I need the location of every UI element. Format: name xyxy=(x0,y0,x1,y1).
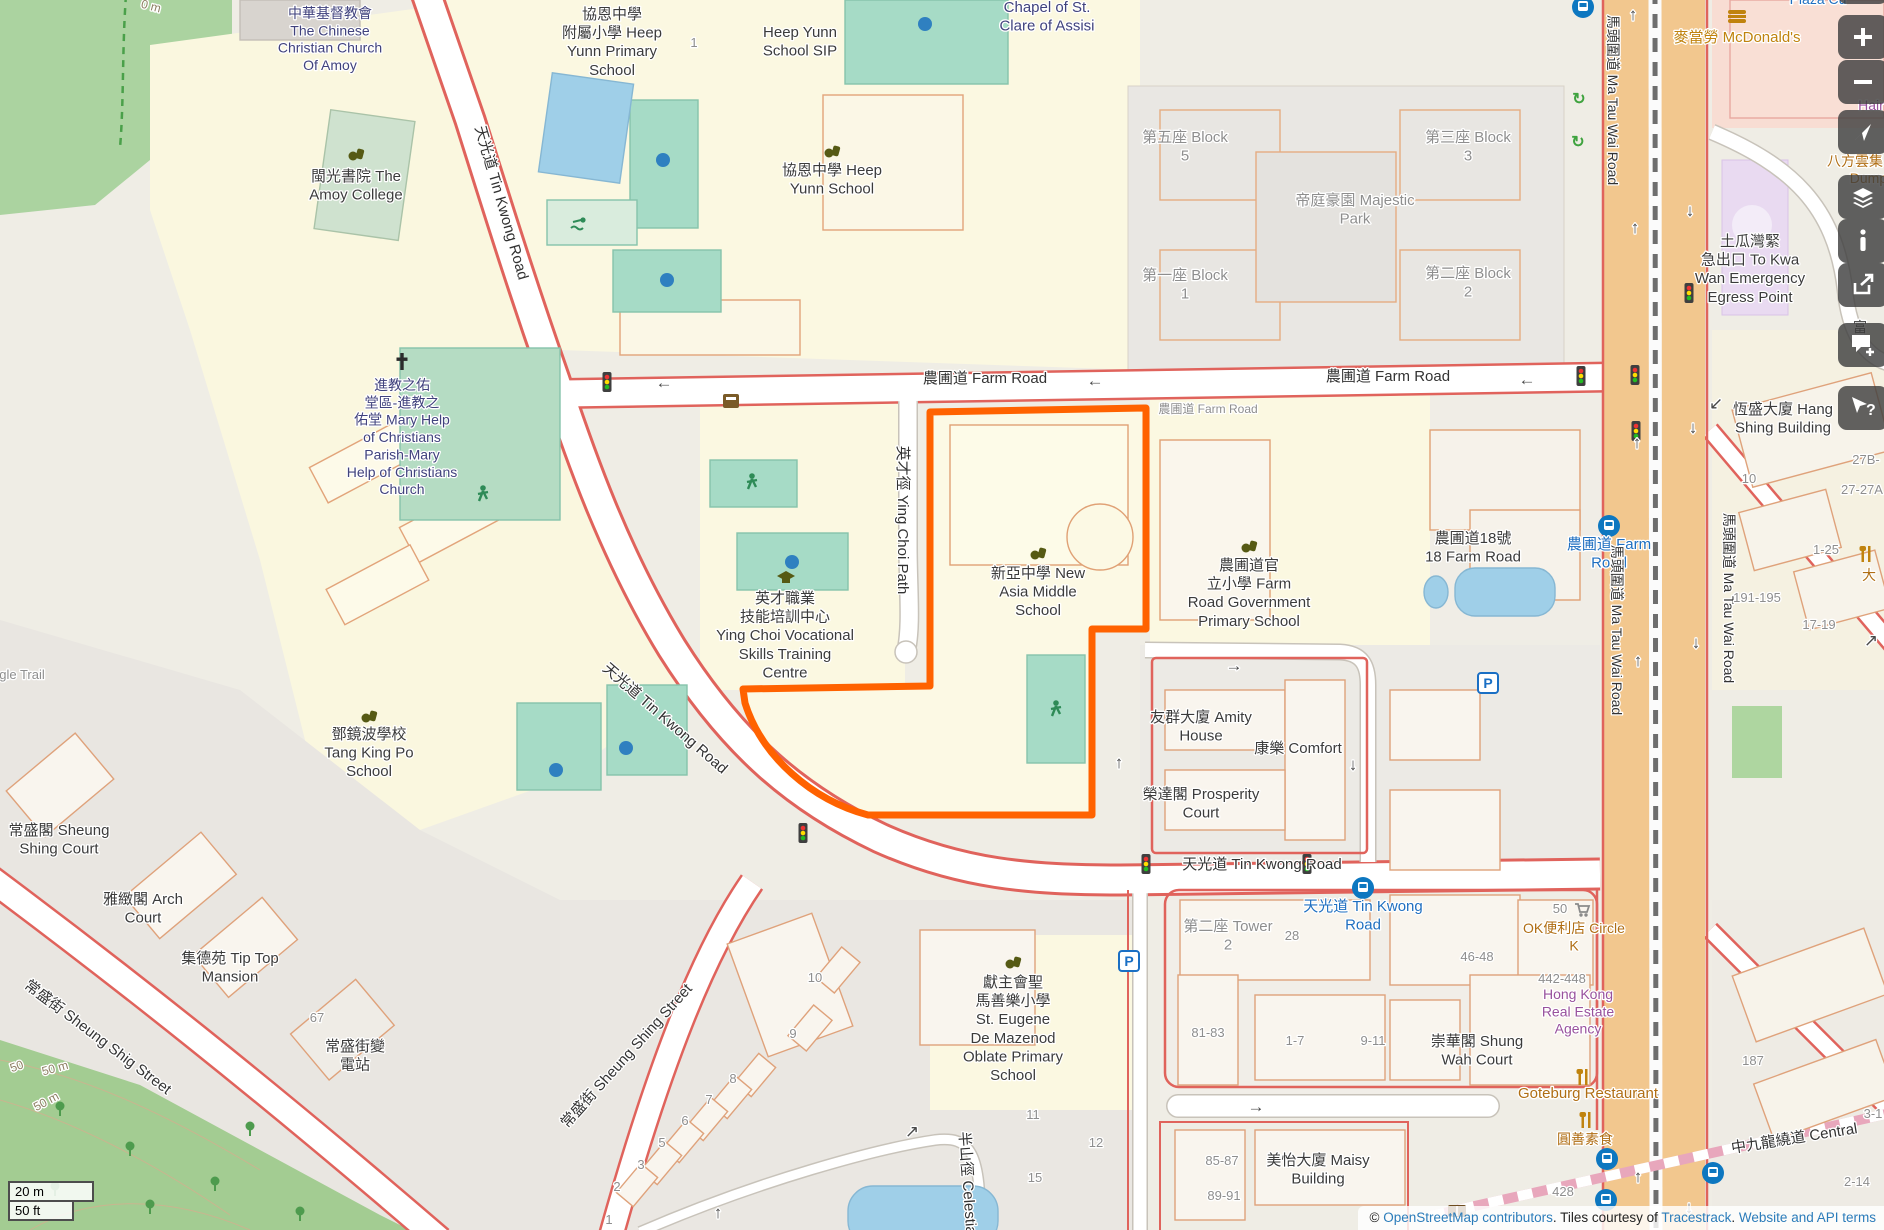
map-label-house-1-7: 1-7 xyxy=(1286,1033,1305,1048)
map-label-oneway-left-1: ← xyxy=(656,373,673,392)
traffic-icon xyxy=(799,823,808,843)
map-label-terrace-5: 5 xyxy=(658,1135,665,1150)
map-label-house-2-14: 2-14 xyxy=(1844,1174,1870,1189)
map-label-terrace-3: 3 xyxy=(637,1157,644,1172)
envelope-icon xyxy=(723,394,739,408)
map-label-house-27b: 27B- xyxy=(1852,452,1879,467)
map-label-terrace-1: 1 xyxy=(605,1212,612,1227)
svg-text:P: P xyxy=(1124,953,1133,969)
map-label-house-85-87: 85-87 xyxy=(1205,1153,1238,1168)
show-location-button[interactable] xyxy=(1838,110,1884,154)
parking-icon: P xyxy=(1119,951,1139,971)
map-label-terrace-6: 6 xyxy=(681,1113,688,1128)
map-label-da-fragment: 大 xyxy=(1862,567,1876,583)
map-label-oneway-left-3: ← xyxy=(1519,370,1536,389)
map-label-mcdonalds: 麥當勞 McDonald's xyxy=(1673,29,1800,46)
map-label-oneway-up-6: ↑ xyxy=(714,1203,723,1222)
map-label-farm-road-small: 農圃道 Farm Road xyxy=(1158,402,1257,416)
map-label-oneway-up-4: ↑ xyxy=(1634,651,1643,670)
map-label-oneway-right-2: → xyxy=(1248,1097,1265,1116)
map-label-terrace-2: 2 xyxy=(613,1179,620,1194)
map-label-18-farm-road: 農圃道18號18 Farm Road xyxy=(1425,530,1521,566)
map-label-house-191-195: 191-195 xyxy=(1733,590,1781,605)
tracestrack-link[interactable]: Tracestrack xyxy=(1661,1210,1731,1225)
map-label-house-50: 50 xyxy=(1553,901,1567,916)
zoom-in-button[interactable] xyxy=(1838,15,1884,59)
map-label-house-15c: 15 xyxy=(1028,1170,1042,1185)
svg-text:↻: ↻ xyxy=(1571,134,1584,151)
map-label-house-10r: 10 xyxy=(1742,471,1756,486)
map-label-farm-road-2: 農圃道 Farm Road xyxy=(1326,368,1450,385)
map-label-house-28: 28 xyxy=(1285,928,1299,943)
map-label-house-3-1: 3-1 xyxy=(1864,1106,1883,1121)
map-label-oneway-down-2: ↓ xyxy=(1689,418,1698,437)
svg-text:?: ? xyxy=(1866,402,1876,419)
osm-contributors-link[interactable]: OpenStreetMap contributors xyxy=(1383,1210,1553,1225)
bus-icon xyxy=(1598,515,1620,537)
map-label-oneway-right-1: → xyxy=(1226,656,1243,675)
map-label-heep-yunn-sip: Heep YunnSchool SIP xyxy=(763,24,837,60)
traffic-icon xyxy=(1631,365,1640,385)
map-label-oneway-up-1: ↑ xyxy=(1629,5,1638,24)
dot-icon xyxy=(549,763,563,777)
dot-icon xyxy=(619,741,633,755)
map-label-house-81-83: 81-83 xyxy=(1191,1025,1224,1040)
map-label-house-46-48: 46-48 xyxy=(1460,949,1493,964)
map-label-oneway-up-3: ↑ xyxy=(1633,433,1642,452)
map-label-oneway-left-2: ← xyxy=(1087,371,1104,390)
map-label-chapel-st-clare: Chapel of St.Clare of Assisi xyxy=(999,0,1094,35)
map-label-ma-tau-wai-1: 馬頭圍道 Ma Tau Wai Road xyxy=(1605,15,1621,185)
recycle-icon: ↻ xyxy=(1572,91,1585,108)
map-label-house-1-25: 1-25 xyxy=(1813,542,1839,557)
map-label-dumpling-fragment: 八方雲集 xyxy=(1827,153,1883,169)
share-button[interactable] xyxy=(1838,263,1884,307)
map-label-tin-kwong-h: 天光道 Tin Kwong Road xyxy=(1182,856,1342,873)
map-label-terrace-9: 9 xyxy=(789,1026,796,1041)
map-label-house-12c: 12 xyxy=(1089,1135,1103,1150)
attribution-mid1: . Tiles courtesy of xyxy=(1553,1210,1662,1225)
map-label-goteburg-restaurant: Goteburg Restaurant xyxy=(1518,1085,1659,1102)
map-label-oneway-up-2: ↑ xyxy=(1631,218,1640,237)
map-label-oneway-up-5: ↑ xyxy=(1634,1167,1643,1186)
map-label-house-9-11: 9-11 xyxy=(1360,1033,1385,1048)
map-label-veg-restaurant: 圓善素食 xyxy=(1557,1131,1613,1147)
map-label-oneway-down-3: ↓ xyxy=(1692,633,1701,652)
map-label-house-1: 1 xyxy=(690,35,697,50)
map-label-trail-fragment: gle Trail xyxy=(0,667,45,682)
terms-link[interactable]: Website and API terms xyxy=(1739,1210,1876,1225)
traffic-icon xyxy=(1685,283,1694,303)
map-label-shung-wah-court: 崇華閣 ShungWah Court xyxy=(1431,1033,1524,1069)
traffic-icon xyxy=(603,372,612,392)
map-label-house-67: 67 xyxy=(310,1010,324,1025)
map-label-plaza-fragment: Plaza Cu xyxy=(1790,0,1847,7)
attribution-copyright: © xyxy=(1370,1210,1384,1225)
map-label-house-442-448: 442-448 xyxy=(1538,971,1586,986)
map-label-oneway-ne-1: ↗ xyxy=(905,1122,919,1141)
burger-icon xyxy=(1728,10,1746,23)
map-label-house-428: 428 xyxy=(1552,1184,1574,1199)
attribution-bar: © OpenStreetMap contributors. Tiles cour… xyxy=(1358,1206,1884,1230)
scale-metric: 20 m xyxy=(8,1181,94,1202)
traffic-icon xyxy=(1577,366,1586,386)
partial-top-button[interactable] xyxy=(1838,0,1884,4)
map-label-terrace-10: 10 xyxy=(808,970,822,985)
map-label-comfort: 康樂 Comfort xyxy=(1254,740,1342,757)
map-label-sheung-shing-court: 常盛閣 SheungShing Court xyxy=(9,822,110,858)
map-canvas[interactable]: PP↻↻ 中華基督教會The ChineseChristian ChurchOf… xyxy=(0,0,1884,1230)
map-label-oneway-down-5: ↓ xyxy=(1349,755,1358,774)
map-viewport[interactable]: PP↻↻ 中華基督教會The ChineseChristian ChurchOf… xyxy=(0,0,1884,1230)
map-label-farm-road-1: 農圃道 Farm Road xyxy=(923,370,1047,387)
dot-icon xyxy=(660,273,674,287)
bus-icon xyxy=(1352,877,1374,899)
layers-button[interactable] xyxy=(1838,175,1884,219)
dot-icon xyxy=(918,17,932,31)
svg-text:↻: ↻ xyxy=(1572,91,1585,108)
parking-icon: P xyxy=(1478,673,1498,693)
svg-text:P: P xyxy=(1483,675,1492,691)
map-label-house-17-19: 17-19 xyxy=(1802,617,1835,632)
query-features-button[interactable]: ? xyxy=(1838,386,1884,430)
dot-icon xyxy=(785,555,799,569)
traffic-icon xyxy=(1142,854,1151,874)
map-label-ying-choi-path: 英才徑 Ying Choi Path xyxy=(894,446,912,595)
map-key-button[interactable] xyxy=(1838,219,1884,263)
scale-imperial: 50 ft xyxy=(8,1200,74,1221)
bus-icon xyxy=(1596,1148,1618,1170)
map-label-oneway-ne-2: ↗ xyxy=(1864,631,1878,650)
dot-icon xyxy=(656,153,670,167)
attribution-mid2: . xyxy=(1731,1210,1739,1225)
scale-bar: 20 m 50 ft xyxy=(8,1181,94,1221)
bus-icon xyxy=(1702,1162,1724,1184)
map-label-house-89-91: 89-91 xyxy=(1207,1188,1240,1203)
map-label-house-27-27a: 27-27A xyxy=(1841,482,1883,497)
map-label-ma-tau-wai-2: 馬頭圍道 Ma Tau Wai Road xyxy=(1609,545,1625,715)
map-label-terrace-8: 8 xyxy=(729,1071,736,1086)
map-label-house-187: 187 xyxy=(1742,1053,1764,1068)
map-label-house-11c: 11 xyxy=(1026,1107,1040,1122)
zoom-out-button[interactable] xyxy=(1838,60,1884,104)
recycle-icon: ↻ xyxy=(1571,134,1584,151)
map-label-oneway-down-1: ↓ xyxy=(1686,201,1695,220)
map-label-terrace-7: 7 xyxy=(705,1092,712,1107)
map-label-oneway-up-7: ↑ xyxy=(1115,753,1124,772)
add-note-button[interactable] xyxy=(1838,323,1884,367)
map-label-oneway-sw-1: ↙ xyxy=(1709,394,1723,413)
